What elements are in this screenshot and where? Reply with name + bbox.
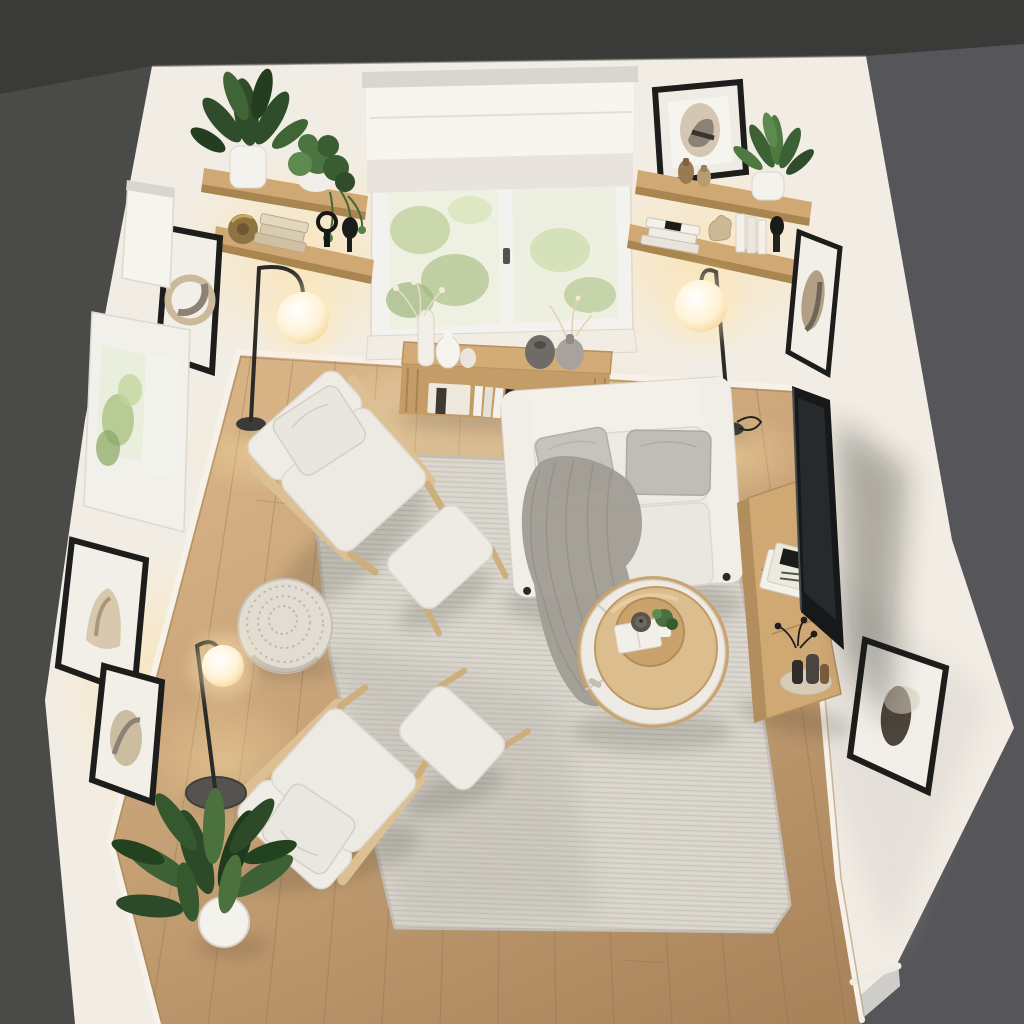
coffee-table (577, 576, 729, 728)
window-top (362, 66, 638, 360)
lamp-left-globe (277, 292, 329, 344)
white-books-upright (736, 214, 766, 254)
leaning-frame (655, 82, 746, 182)
brass-canister (228, 214, 258, 244)
lamp-bottom-globe (202, 645, 244, 687)
lamp-right-globe (675, 280, 727, 332)
left-frame-3 (92, 666, 162, 802)
roman-shade-fold (367, 153, 633, 193)
left-roller-blind (122, 182, 174, 288)
right-frame-upper (788, 232, 840, 374)
scene-canvas (0, 0, 1024, 1024)
window-handle (503, 248, 510, 264)
left-window (84, 312, 190, 532)
living-room-render (0, 0, 1024, 1024)
sofa-pillow-right (626, 430, 711, 495)
